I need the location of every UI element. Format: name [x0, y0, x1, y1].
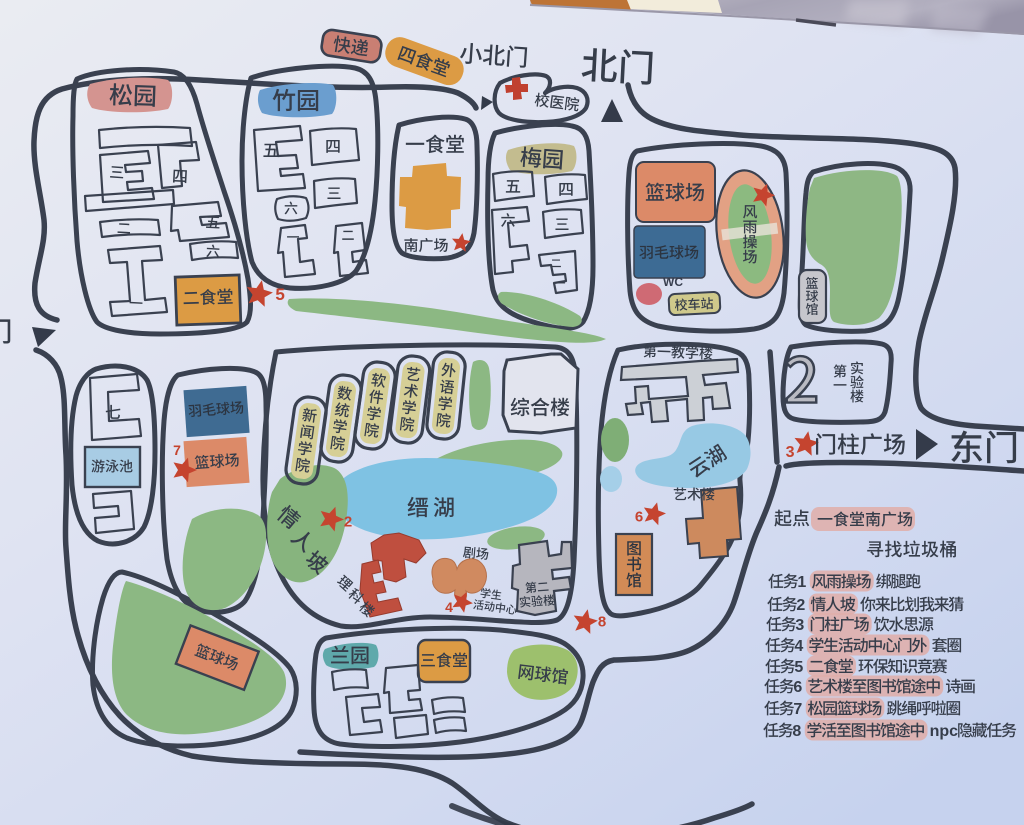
svg-text:2: 2 — [796, 597, 805, 614]
svg-text:6: 6 — [793, 679, 802, 696]
svg-text:WC: WC — [663, 275, 683, 289]
svg-text:3: 3 — [795, 617, 804, 634]
svg-text:4: 4 — [794, 638, 803, 655]
svg-text:8: 8 — [792, 723, 801, 740]
svg-text:4: 4 — [445, 599, 453, 615]
svg-text:7: 7 — [173, 442, 181, 458]
svg-text:7: 7 — [793, 701, 802, 718]
svg-text:6: 6 — [635, 508, 643, 525]
svg-text:npc: npc — [930, 723, 959, 740]
svg-text:1: 1 — [797, 574, 806, 591]
svg-text:5: 5 — [794, 659, 803, 676]
svg-text:5: 5 — [275, 285, 284, 304]
svg-text:8: 8 — [598, 613, 606, 630]
svg-text:3: 3 — [786, 444, 795, 461]
svg-text:2: 2 — [344, 513, 352, 530]
